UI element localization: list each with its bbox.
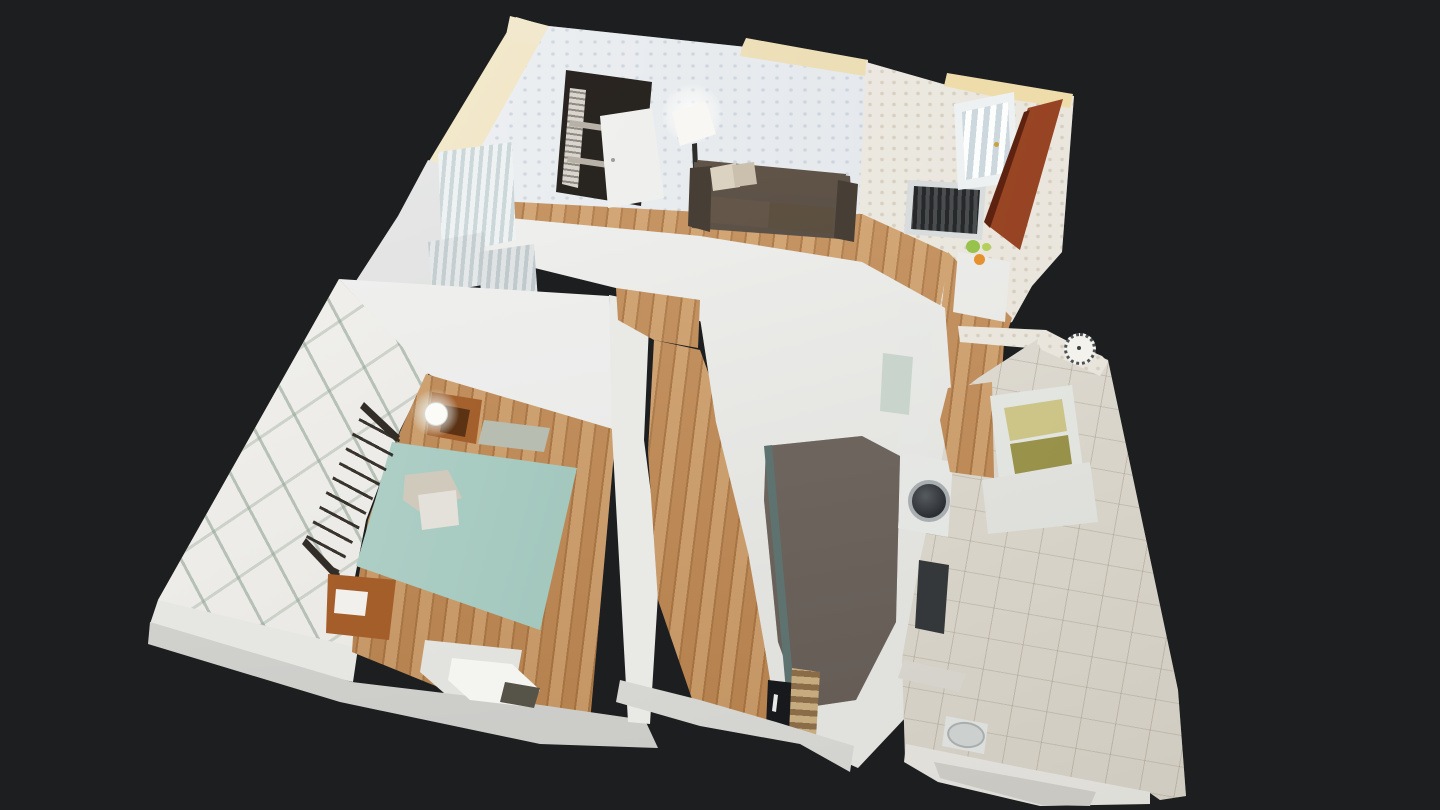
fruit-bowl-orange — [974, 254, 985, 265]
entry-door-knob — [994, 142, 999, 147]
door-panel-handle — [611, 158, 615, 162]
bedside-lamp — [424, 402, 448, 426]
dollhouse-viewport[interactable] — [0, 0, 1440, 810]
fruit-bowl-leaf — [982, 243, 991, 251]
wall-clock-center-dot — [1077, 346, 1081, 350]
fruit-bowl-green — [966, 240, 980, 253]
washing-machine-drum — [908, 480, 950, 522]
